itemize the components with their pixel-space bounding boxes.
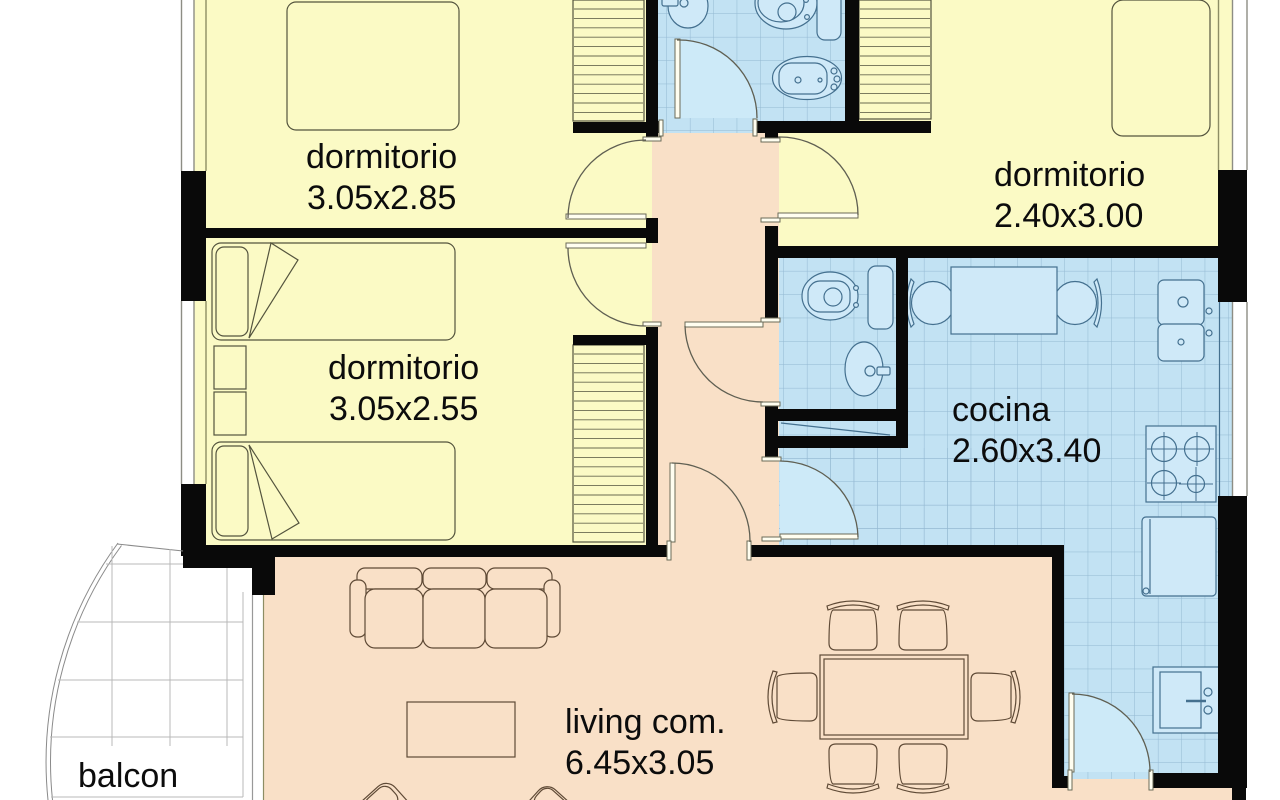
svg-text:dormitorio: dormitorio	[994, 156, 1145, 194]
svg-text:cocina: cocina	[952, 391, 1050, 429]
svg-text:balcon: balcon	[78, 757, 178, 795]
svg-text:dormitorio: dormitorio	[328, 349, 479, 387]
svg-text:living com.: living com.	[565, 703, 726, 741]
svg-text:dormitorio: dormitorio	[306, 138, 457, 176]
svg-text:6.45x3.05: 6.45x3.05	[565, 744, 714, 782]
svg-text:3.05x2.55: 3.05x2.55	[329, 390, 478, 428]
svg-text:2.40x3.00: 2.40x3.00	[994, 197, 1143, 235]
svg-text:2.60x3.40: 2.60x3.40	[952, 432, 1101, 470]
svg-text:3.05x2.85: 3.05x2.85	[307, 179, 456, 217]
